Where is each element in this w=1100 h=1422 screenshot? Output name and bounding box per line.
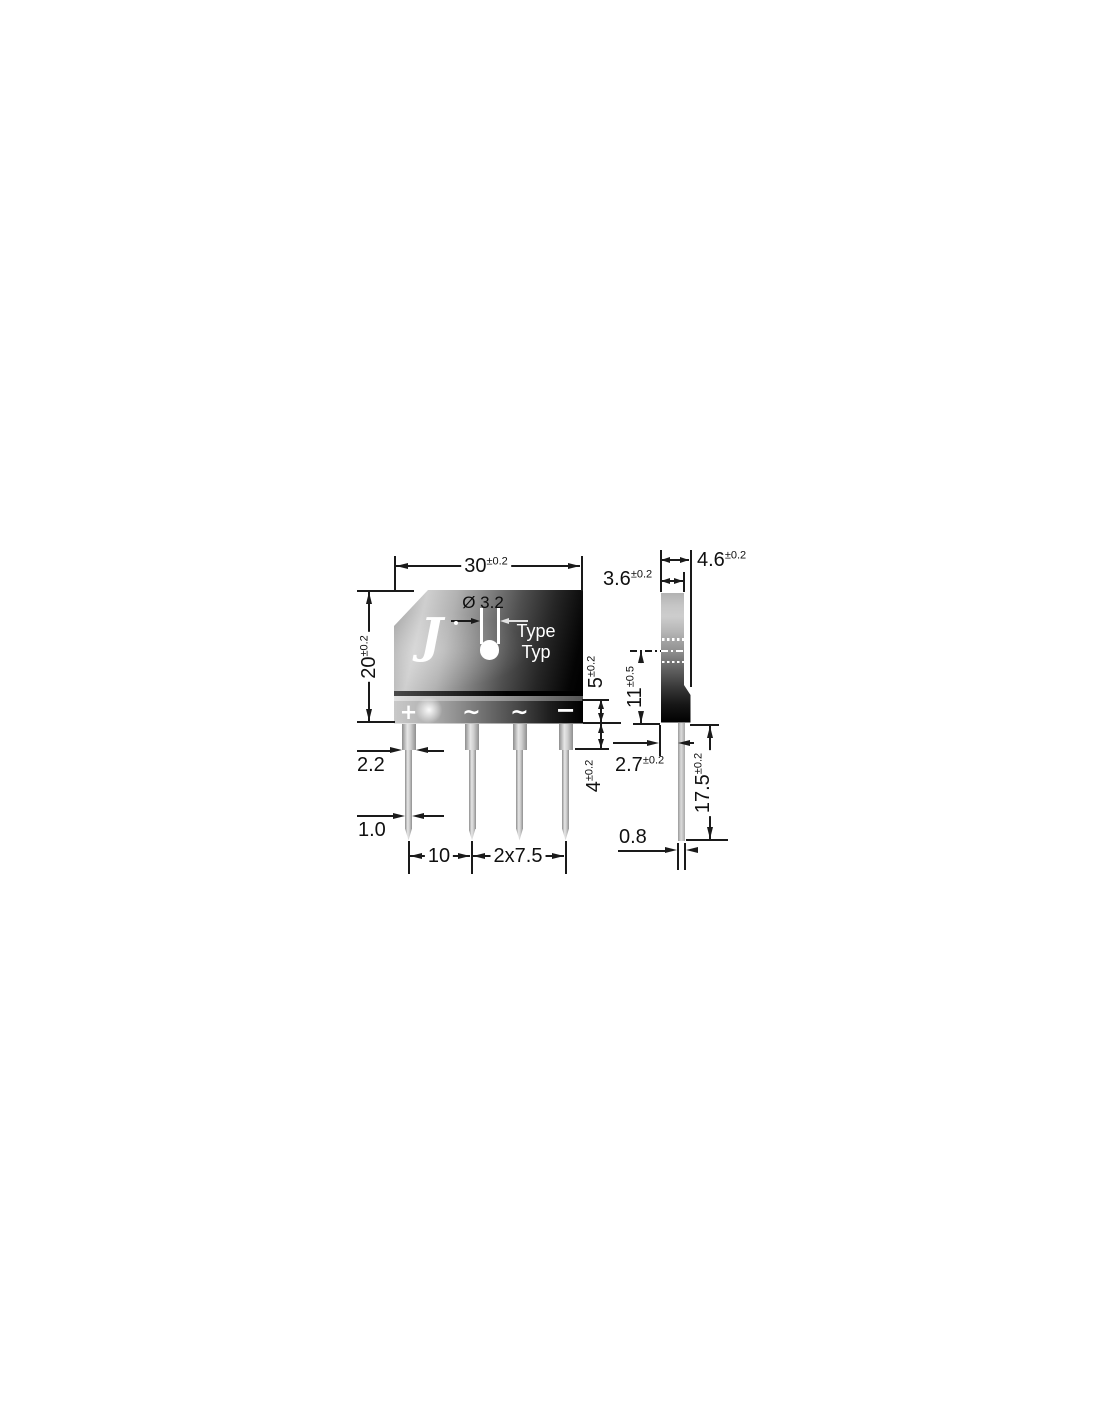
arrowhead (390, 747, 402, 753)
arrowhead (366, 592, 372, 604)
pin2-shoulder (465, 724, 479, 750)
terminal-symbol-ac2: ∼ (509, 701, 530, 724)
extension-line (690, 724, 719, 726)
mounting-hole (480, 640, 500, 660)
dim-lead-thickness: 0.8 (619, 826, 647, 848)
hole-centerline-inner (661, 650, 685, 652)
dim-depth-total: 4.6±0.2 (697, 549, 746, 571)
pin4-tip (562, 829, 569, 841)
arrowhead (674, 578, 683, 584)
manufacturer-logo: J (420, 612, 443, 660)
arrowhead (680, 557, 689, 563)
pin2-lead (469, 750, 476, 829)
dimension-line (357, 750, 390, 752)
dimension-line (613, 742, 648, 744)
pin3-tip (516, 829, 523, 841)
extension-line (659, 725, 661, 756)
pin3-lead (516, 750, 523, 829)
hidden-hole-edge-line (662, 661, 684, 664)
extension-line (683, 572, 685, 592)
dim-lead-offset: 2.7±0.2 (615, 754, 664, 776)
dim-lead-width-narrow: 1.0 (358, 819, 386, 841)
dim-lead-width-wide: 2.2 (357, 754, 385, 776)
arrowhead (412, 813, 424, 819)
pin1-tip (405, 829, 412, 841)
dim-body-width: 30±0.2 (461, 555, 511, 577)
arrowhead (552, 853, 564, 859)
pin4-lead (562, 750, 569, 829)
arrowhead (707, 726, 713, 738)
extension-line (581, 556, 583, 591)
arrowhead (686, 847, 698, 853)
front-view-body: Ø 3.2 J Type Typ + ∼ ∼ − (394, 590, 583, 724)
dimension-line (689, 742, 694, 744)
hidden-hole-edge-line (662, 638, 684, 641)
arrowhead (393, 813, 405, 819)
hole-arrowhead-left (471, 618, 480, 624)
extension-line (357, 721, 395, 723)
type-marking: Type Typ (508, 621, 564, 663)
arrowhead (598, 739, 604, 748)
dimension-line (427, 750, 444, 752)
dim-shoulder-length: 4±0.2 (583, 757, 605, 795)
hole-centerline-outer (630, 650, 661, 652)
pin2-tip (469, 829, 476, 841)
extension-line (394, 556, 396, 591)
strip-highlight (416, 696, 442, 724)
arrowhead (416, 747, 428, 753)
arrowhead (638, 711, 644, 723)
tick-line (565, 841, 567, 874)
pin1-shoulder (402, 724, 416, 750)
extension-line (633, 723, 660, 725)
dimensional-drawing-canvas: Ø 3.2 J Type Typ + ∼ ∼ − 30±0.2 (0, 0, 1100, 1422)
dimension-line (618, 850, 665, 852)
arrowhead (598, 713, 604, 722)
extension-line (575, 748, 609, 750)
extension-line (690, 550, 692, 687)
arrowhead (598, 700, 604, 709)
type-marking-line1: Type (508, 621, 564, 642)
type-marking-line2: Typ (508, 642, 564, 663)
terminal-symbol-minus: − (555, 699, 576, 722)
pin4-shoulder (559, 724, 573, 750)
arrowhead (647, 740, 659, 746)
side-view-body (661, 593, 691, 723)
dim-body-height: 20±0.2 (358, 632, 380, 682)
pin3-shoulder (513, 724, 527, 750)
arrowhead (366, 709, 372, 721)
terminal-symbol-plus: + (398, 701, 419, 724)
arrowhead (568, 563, 580, 569)
hole-slot-left-line (480, 608, 483, 644)
hole-diameter-label: Ø 3.2 (462, 593, 504, 613)
dim-lead-pitch-outer: 10 (425, 845, 453, 867)
hole-slot-right-line (497, 608, 500, 644)
dim-hole-center-height: 11±0.5 (624, 663, 646, 711)
extension-line (686, 839, 728, 841)
arrowhead (707, 827, 713, 839)
arrowhead (598, 724, 604, 733)
arrowhead (458, 853, 470, 859)
dim-depth-upper: 3.6±0.2 (603, 568, 652, 590)
arrowhead (665, 847, 677, 853)
arrowhead (661, 578, 670, 584)
arrowhead (661, 557, 670, 563)
dim-lead-pitch-inner: 2x7.5 (491, 845, 546, 867)
dim-strip-height: 5±0.2 (585, 653, 607, 691)
logo-registered-dot (454, 621, 458, 625)
arrowhead (638, 651, 644, 663)
arrowhead (410, 853, 422, 859)
dimension-line (424, 815, 444, 817)
pin1-lead (405, 750, 412, 829)
extension-line (582, 699, 609, 701)
dim-lead-length: 17.5±0.2 (692, 750, 714, 816)
arrowhead (396, 563, 408, 569)
arrowhead (473, 853, 485, 859)
dimension-line (357, 815, 393, 817)
terminal-symbol-ac1: ∼ (461, 701, 482, 724)
